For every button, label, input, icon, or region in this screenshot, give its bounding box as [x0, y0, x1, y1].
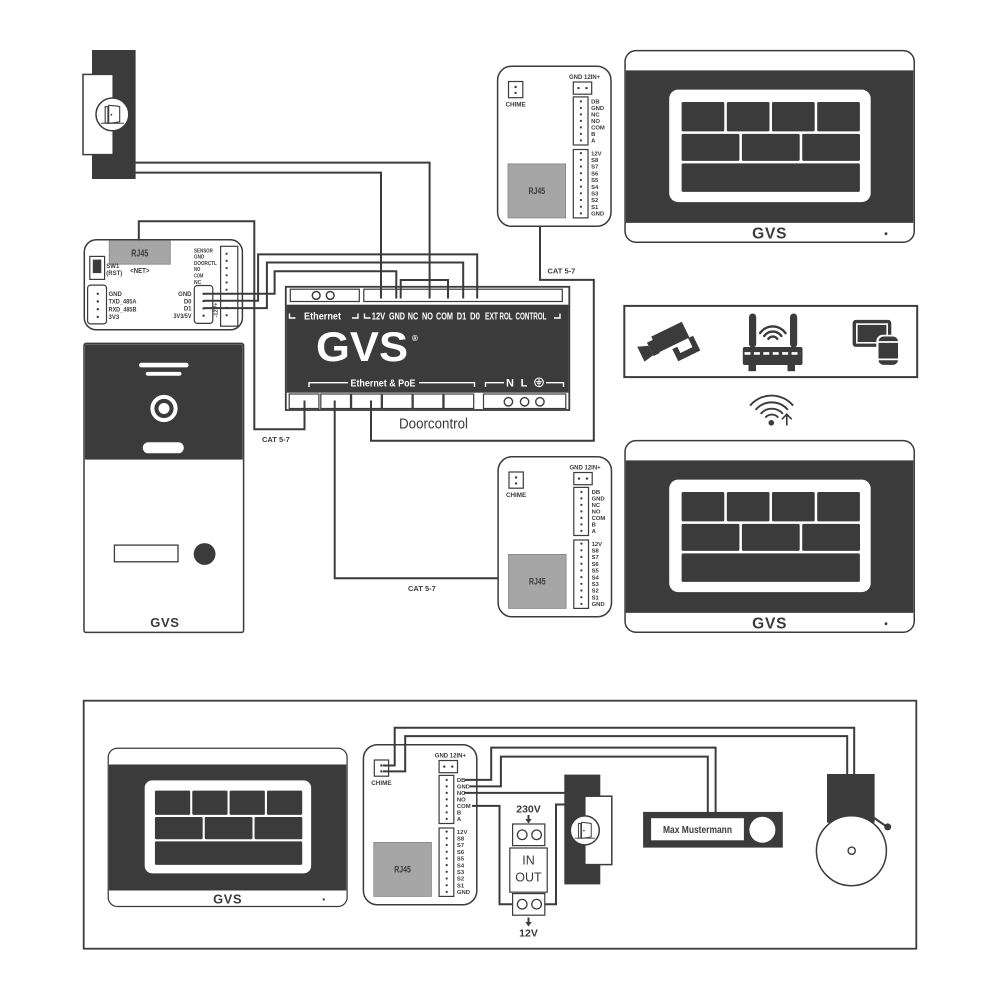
svg-text:GND: GND: [109, 292, 123, 298]
svg-text:COM: COM: [436, 311, 453, 323]
svg-text:GND: GND: [178, 292, 192, 298]
svg-text:<NET>: <NET>: [130, 268, 149, 275]
svg-text:CAT 5-7: CAT 5-7: [548, 267, 576, 276]
svg-text:TXD_485A: TXD_485A: [109, 300, 138, 306]
svg-text:12V: 12V: [519, 928, 538, 940]
svg-text:SW1: SW1: [106, 264, 120, 270]
svg-text:3V3: 3V3: [109, 315, 120, 321]
svg-text:(RST): (RST): [106, 271, 122, 277]
svg-text:®: ®: [412, 334, 418, 343]
svg-text:Doorcontrol: Doorcontrol: [399, 417, 468, 433]
svg-text:SENSOR: SENSOR: [194, 248, 213, 254]
svg-text:D1: D1: [457, 311, 467, 323]
svg-text:Ethernet & PoE: Ethernet & PoE: [351, 377, 416, 389]
svg-text:ROL: ROL: [500, 311, 513, 323]
svg-text:NO: NO: [422, 311, 433, 323]
svg-text:N: N: [506, 377, 514, 389]
svg-text:DOORCTL: DOORCTL: [194, 261, 217, 267]
svg-text:L: L: [521, 377, 528, 389]
svg-text:NO: NO: [194, 267, 201, 273]
svg-text:RXD_485B: RXD_485B: [109, 307, 138, 313]
svg-text:Max Mustermann: Max Mustermann: [663, 825, 732, 836]
svg-text:EXT: EXT: [485, 311, 498, 323]
svg-text:GVS: GVS: [316, 323, 408, 370]
svg-text:Ethernet: Ethernet: [304, 311, 341, 323]
svg-text:CONTROL: CONTROL: [516, 311, 547, 323]
svg-text:IN: IN: [522, 854, 535, 868]
svg-text:230V: 230V: [516, 804, 541, 816]
svg-text:OUT: OUT: [515, 871, 542, 885]
svg-text:CAT 5-7: CAT 5-7: [408, 584, 436, 593]
svg-text:D0: D0: [470, 311, 480, 323]
svg-text:12V: 12V: [372, 311, 386, 323]
svg-text:COM: COM: [194, 274, 204, 280]
svg-text:D1: D1: [184, 307, 192, 313]
svg-text:GND: GND: [389, 311, 405, 323]
svg-text:GVS: GVS: [150, 615, 179, 630]
svg-text:-12V+: -12V+: [214, 303, 220, 318]
svg-text:D0: D0: [184, 299, 192, 305]
svg-text:CAT 5-7: CAT 5-7: [262, 435, 290, 444]
svg-text:RJ45: RJ45: [131, 247, 148, 259]
svg-text:GND: GND: [194, 255, 204, 261]
svg-text:NC: NC: [408, 311, 419, 323]
svg-text:3V3/5V: 3V3/5V: [174, 314, 192, 320]
